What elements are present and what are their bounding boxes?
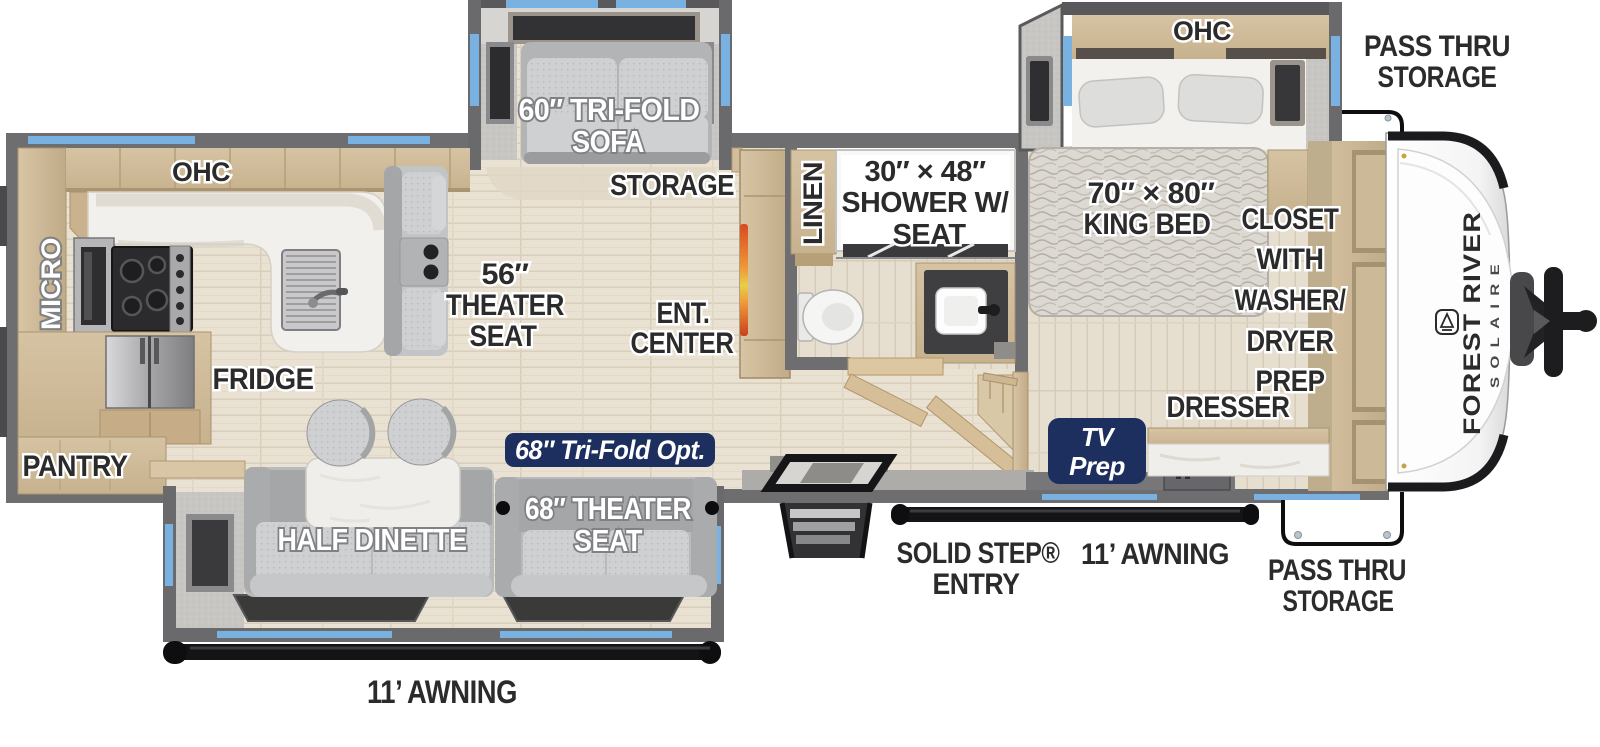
svg-text:56″: 56″	[482, 258, 529, 291]
svg-text:11’ AWNING: 11’ AWNING	[1081, 538, 1229, 571]
svg-text:STORAGE: STORAGE	[1378, 61, 1497, 94]
svg-text:MICRO: MICRO	[36, 238, 66, 330]
svg-text:30″ × 48″: 30″ × 48″	[865, 156, 987, 188]
svg-text:THEATER: THEATER	[446, 289, 565, 322]
svg-text:SEAT: SEAT	[470, 320, 537, 353]
svg-text:FRIDGE: FRIDGE	[213, 363, 314, 396]
svg-text:KING BED: KING BED	[1084, 208, 1211, 241]
svg-text:PANTRY: PANTRY	[23, 450, 128, 483]
svg-text:SOLAIRE: SOLAIRE	[1488, 256, 1502, 388]
svg-text:HALF DINETTE: HALF DINETTE	[278, 522, 467, 557]
svg-text:PASS THRU: PASS THRU	[1364, 30, 1510, 63]
svg-text:SEAT: SEAT	[893, 219, 967, 251]
svg-text:DRESSER: DRESSER	[1167, 391, 1291, 424]
svg-text:PASS THRU: PASS THRU	[1268, 554, 1406, 587]
svg-text:SOFA: SOFA	[572, 124, 644, 159]
svg-text:DRYER: DRYER	[1247, 325, 1335, 358]
svg-text:FOREST RIVER: FOREST RIVER	[1459, 211, 1486, 435]
svg-text:70″ × 80″: 70″ × 80″	[1088, 177, 1215, 210]
svg-text:11’ AWNING: 11’ AWNING	[367, 674, 517, 710]
svg-text:ENT.: ENT.	[657, 297, 710, 330]
svg-text:OHC: OHC	[1173, 16, 1231, 46]
svg-text:68″ THEATER: 68″ THEATER	[525, 491, 691, 526]
svg-text:OHC: OHC	[172, 157, 230, 187]
svg-text:SOLID STEP®: SOLID STEP®	[897, 537, 1060, 570]
svg-text:60″ TRI-FOLD: 60″ TRI-FOLD	[519, 92, 700, 127]
svg-text:STORAGE: STORAGE	[1283, 585, 1394, 618]
svg-text:ENTRY: ENTRY	[933, 568, 1020, 601]
svg-text:SHOWER W/: SHOWER W/	[842, 187, 1009, 219]
svg-text:68″ Tri-Fold Opt.: 68″ Tri-Fold Opt.	[515, 435, 705, 465]
svg-text:WITH: WITH	[1257, 243, 1324, 276]
svg-text:STORAGE: STORAGE	[610, 170, 734, 202]
svg-text:CENTER: CENTER	[631, 327, 735, 360]
svg-text:CLOSET: CLOSET	[1242, 203, 1339, 236]
svg-text:Prep: Prep	[1069, 451, 1125, 481]
svg-text:WASHER/: WASHER/	[1235, 284, 1347, 317]
svg-text:SEAT: SEAT	[574, 523, 642, 558]
svg-text:TV: TV	[1081, 422, 1116, 452]
svg-text:LINEN: LINEN	[798, 162, 828, 245]
